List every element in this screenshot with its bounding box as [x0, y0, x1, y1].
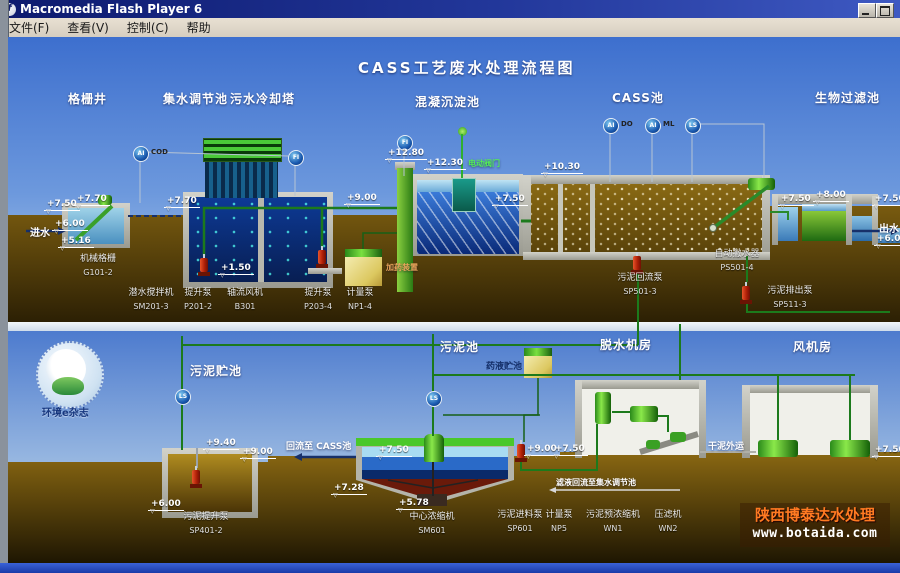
elevation-marker: +9.00 — [344, 193, 380, 205]
flow-indicator-1: FI — [288, 150, 304, 166]
elevation-marker: +8.00 — [813, 190, 849, 202]
logo-caption: 环境e杂志 — [42, 404, 89, 419]
elevation-marker: +6.00 — [52, 219, 88, 231]
mlss-analyzer: AIML — [645, 118, 661, 134]
eq-filter-press: 压滤机WN2 — [654, 509, 681, 535]
label-dosing-device: 加药装置 — [386, 262, 418, 273]
label-dry-sludge-out: 干泥外运 — [708, 439, 744, 452]
elevation-marker: +10.30 — [541, 162, 583, 174]
elevation-marker: +7.28 — [331, 483, 367, 495]
label-chem-tank: 药液贮池 — [486, 359, 522, 372]
elevation-marker: +7.50 — [872, 194, 900, 206]
eq-sludge-lift-pump: 污泥提升泵SP401-2 — [183, 511, 228, 537]
eq-metering-pump-2: 计量泵NP5 — [545, 509, 572, 535]
label-return-to-cass: 回流至 CASS池 — [286, 439, 351, 452]
elevation-marker: +7.70 — [164, 196, 200, 208]
level-switch-cass: LS — [685, 118, 701, 134]
elevation-marker: +12.80 — [385, 148, 427, 160]
flash-player-window: f Macromedia Flash Player 6 文件(F) 查看(V) … — [0, 0, 900, 573]
eq-mechanical-screen: 机械格栅G101-2 — [80, 253, 116, 279]
eq-axial-fan: 轴流风机B301 — [227, 287, 263, 313]
lift-pump-P201-icon — [198, 254, 210, 276]
environment-magazine-logo — [36, 341, 104, 409]
label-sludge-tank: 污泥池 — [440, 338, 479, 355]
eq-decanter: 自动撇水器PS501-4 — [714, 248, 759, 274]
do-analyzer: AIDO — [603, 118, 619, 134]
eq-lift-pump-2: 提升泵P203-4 — [304, 287, 332, 313]
elevation-marker: +7.50 — [492, 194, 528, 206]
elevation-marker: +5.16 — [58, 236, 94, 248]
level-switch-storage: LS — [175, 389, 191, 405]
sludge-return-pump-icon — [631, 252, 643, 274]
elevation-marker: +6.00 — [874, 234, 900, 246]
eq-sludge-return-pump: 污泥回流泵SP501-3 — [617, 272, 662, 298]
eq-submersible-mixer: 潜水搅拌机SM201-3 — [128, 287, 173, 313]
label-blower-room: 风机房 — [793, 338, 832, 355]
label-cass-tank: CASS池 — [612, 89, 664, 106]
label-cooling-tower: 污水冷却塔 — [230, 90, 295, 107]
label-outlet: 出水 — [879, 220, 899, 235]
elevation-marker: +7.50 — [376, 445, 412, 457]
label-biofilter: 生物过滤池 — [815, 89, 880, 106]
elevation-marker: +1.50 — [218, 263, 254, 275]
logo-leaf — [52, 377, 84, 395]
eq-metering-pump-1: 计量泵NP1-4 — [346, 287, 373, 313]
elevation-marker: +9.40 — [203, 438, 239, 450]
eq-sludge-discharge-pump: 污泥排出泵SP511-3 — [767, 285, 812, 311]
label-dewatering-room: 脱水机房 — [600, 336, 652, 353]
eq-center-thickener: 中心浓缩机SM601 — [409, 511, 454, 537]
elevation-marker: +7.70 — [74, 194, 110, 206]
elevation-marker: +7.50 — [552, 444, 588, 456]
elevation-marker: +5.78 — [396, 498, 432, 510]
watermark: 陕西博泰达水处理 www.botaida.com — [740, 503, 890, 547]
eq-sludge-feed-pump: 污泥进料泵SP601 — [497, 509, 542, 535]
label-grid-well: 格栅井 — [68, 90, 107, 107]
label-coagulation-tank: 混凝沉淀池 — [415, 93, 480, 110]
analyzer-cod-instrument: AICOD — [133, 146, 149, 162]
label-inlet: 进水 — [30, 224, 50, 239]
sludge-lift-pump-icon — [190, 466, 202, 488]
diagram-title: CASS工艺废水处理流程图 — [358, 57, 576, 78]
label-collection-tank: 集水调节池 — [163, 90, 228, 107]
level-switch-thickener: LS — [426, 391, 442, 407]
sludge-discharge-pump-icon — [740, 282, 752, 304]
watermark-url: www.botaida.com — [740, 525, 890, 542]
elevation-marker: +9.00 — [240, 447, 276, 459]
watermark-company: 陕西博泰达水处理 — [740, 506, 890, 525]
lift-pump-P203-icon — [316, 246, 328, 268]
elevation-marker: +7.50 — [778, 194, 814, 206]
elevation-marker: +6.00 — [148, 499, 184, 511]
label-electric-valve: 电动阀门 — [468, 158, 500, 169]
eq-pre-thickener: 污泥预浓缩机WN1 — [586, 509, 640, 535]
label-sludge-storage: 污泥贮池 — [190, 362, 242, 379]
elevation-marker: +7.50 — [872, 445, 900, 457]
eq-lift-pump-1: 提升泵P201-2 — [184, 287, 212, 313]
elevation-marker: +12.30 — [424, 158, 466, 170]
label-filtrate-return: 滤液回流至集水调节池 — [556, 477, 636, 488]
